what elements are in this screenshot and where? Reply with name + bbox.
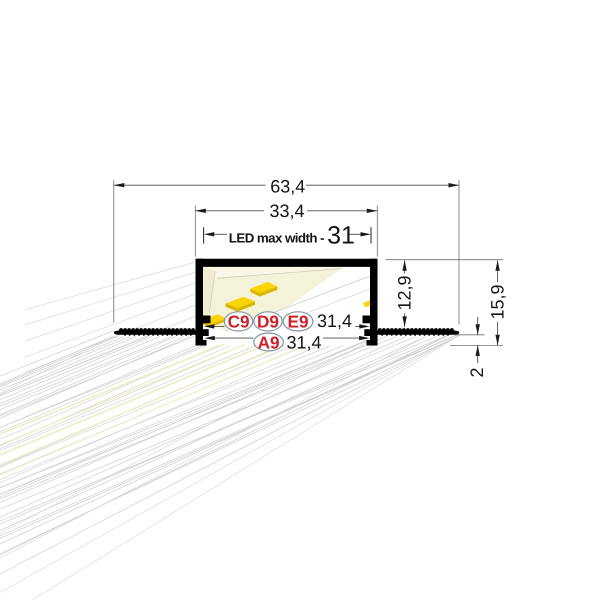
svg-text:31,4: 31,4	[287, 332, 322, 352]
svg-text:63,4: 63,4	[270, 177, 305, 197]
svg-text:33,4: 33,4	[269, 201, 304, 221]
svg-text:12,9: 12,9	[395, 275, 415, 310]
svg-text:E9: E9	[287, 312, 308, 332]
svg-text:C9: C9	[228, 312, 250, 332]
svg-text:2: 2	[467, 367, 487, 377]
svg-text:A9: A9	[258, 332, 280, 352]
svg-text:15,9: 15,9	[488, 284, 508, 319]
svg-text:31,4: 31,4	[317, 311, 352, 331]
svg-text:D9: D9	[257, 312, 279, 332]
